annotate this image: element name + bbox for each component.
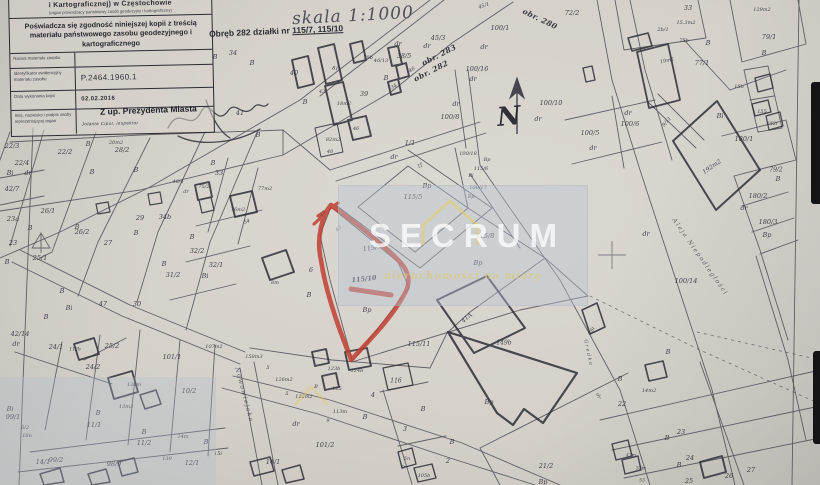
dashed-boundary-lines: [590, 296, 820, 404]
stamp-row-label: Nazwa materiału zasobu: [10, 53, 75, 68]
stamp-row-value: P.2464.1960.1: [76, 65, 213, 90]
photo-edge-shadow: [811, 82, 820, 204]
stamp-row-label: Identyfikator ewidencyjny materiału zaso…: [11, 68, 76, 91]
stamp-row-value: [75, 50, 212, 67]
certification-stamp: i Kartograficznej) w Częstochowie (organ…: [8, 0, 215, 137]
stamp-signature-typed: Jolanta Cipur, inspektor: [82, 119, 209, 127]
stamp-row-label: Data wykonania kopii: [11, 91, 76, 110]
watermark-overlay-secondary: [0, 377, 216, 485]
stamp-row-label: Imię, nazwisko i podpis osoby reprezentu…: [11, 110, 76, 135]
survey-triangle-icon: [32, 233, 50, 253]
north-arrow-icon: [510, 78, 524, 134]
photo-edge-shadow: [813, 351, 820, 444]
watermark-brand: SECRUM: [338, 217, 588, 255]
watermark-tagline: nieruchomości na miarę: [338, 271, 588, 282]
watermark-overlay: SECRUM nieruchomości na miarę: [338, 185, 588, 306]
stamp-certification-text: Poświadcza się zgodność niniejszej kopii…: [10, 14, 213, 53]
cadastral-map-photo: 34B41BB40B81i18m282m240434679bB343946/13…: [0, 0, 820, 485]
house-roof-icon: [292, 380, 332, 408]
survey-cross-icon: [598, 241, 626, 269]
stamp-row-identifier: Identyfikator ewidencyjny materiału zaso…: [11, 64, 213, 91]
